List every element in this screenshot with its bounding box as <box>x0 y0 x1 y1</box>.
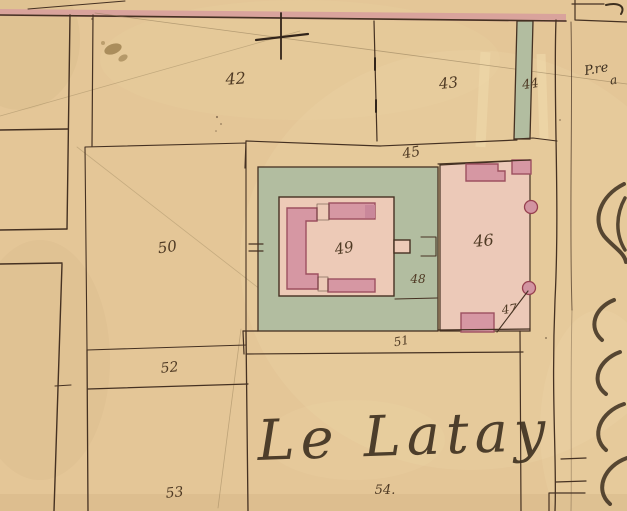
well-circle-top <box>525 201 538 214</box>
label-parcel-44: 44 <box>520 76 539 93</box>
cadastral-map-scan: 42 43 44 45 46 47 48 49 50 51 52 53 54. … <box>0 0 627 511</box>
label-parcel-53: 53 <box>165 484 184 502</box>
label-parcel-51: 51 <box>393 333 410 349</box>
building-49-top-wing-end <box>365 205 375 218</box>
building-49-bottom-wing <box>328 279 375 292</box>
label-parcel-42: 42 <box>224 68 247 88</box>
label-parcel-43: 43 <box>437 73 459 93</box>
label-parcel-49: 49 <box>332 237 355 258</box>
label-parcel-50: 50 <box>157 237 179 258</box>
label-parcel-54: 54. <box>375 483 396 498</box>
well-circle-bottom <box>523 282 536 295</box>
map-canvas: 42 43 44 45 46 47 48 49 50 51 52 53 54. … <box>0 0 627 511</box>
label-parcel-52: 52 <box>160 359 179 377</box>
building-46-roadside <box>512 160 531 174</box>
label-parcel-45: 45 <box>400 144 421 163</box>
label-parcel-47: 47 <box>500 301 518 317</box>
label-parcel-46: 46 <box>472 230 495 251</box>
place-name: Le Latay <box>255 399 552 474</box>
label-parcel-48: 48 <box>409 272 426 286</box>
